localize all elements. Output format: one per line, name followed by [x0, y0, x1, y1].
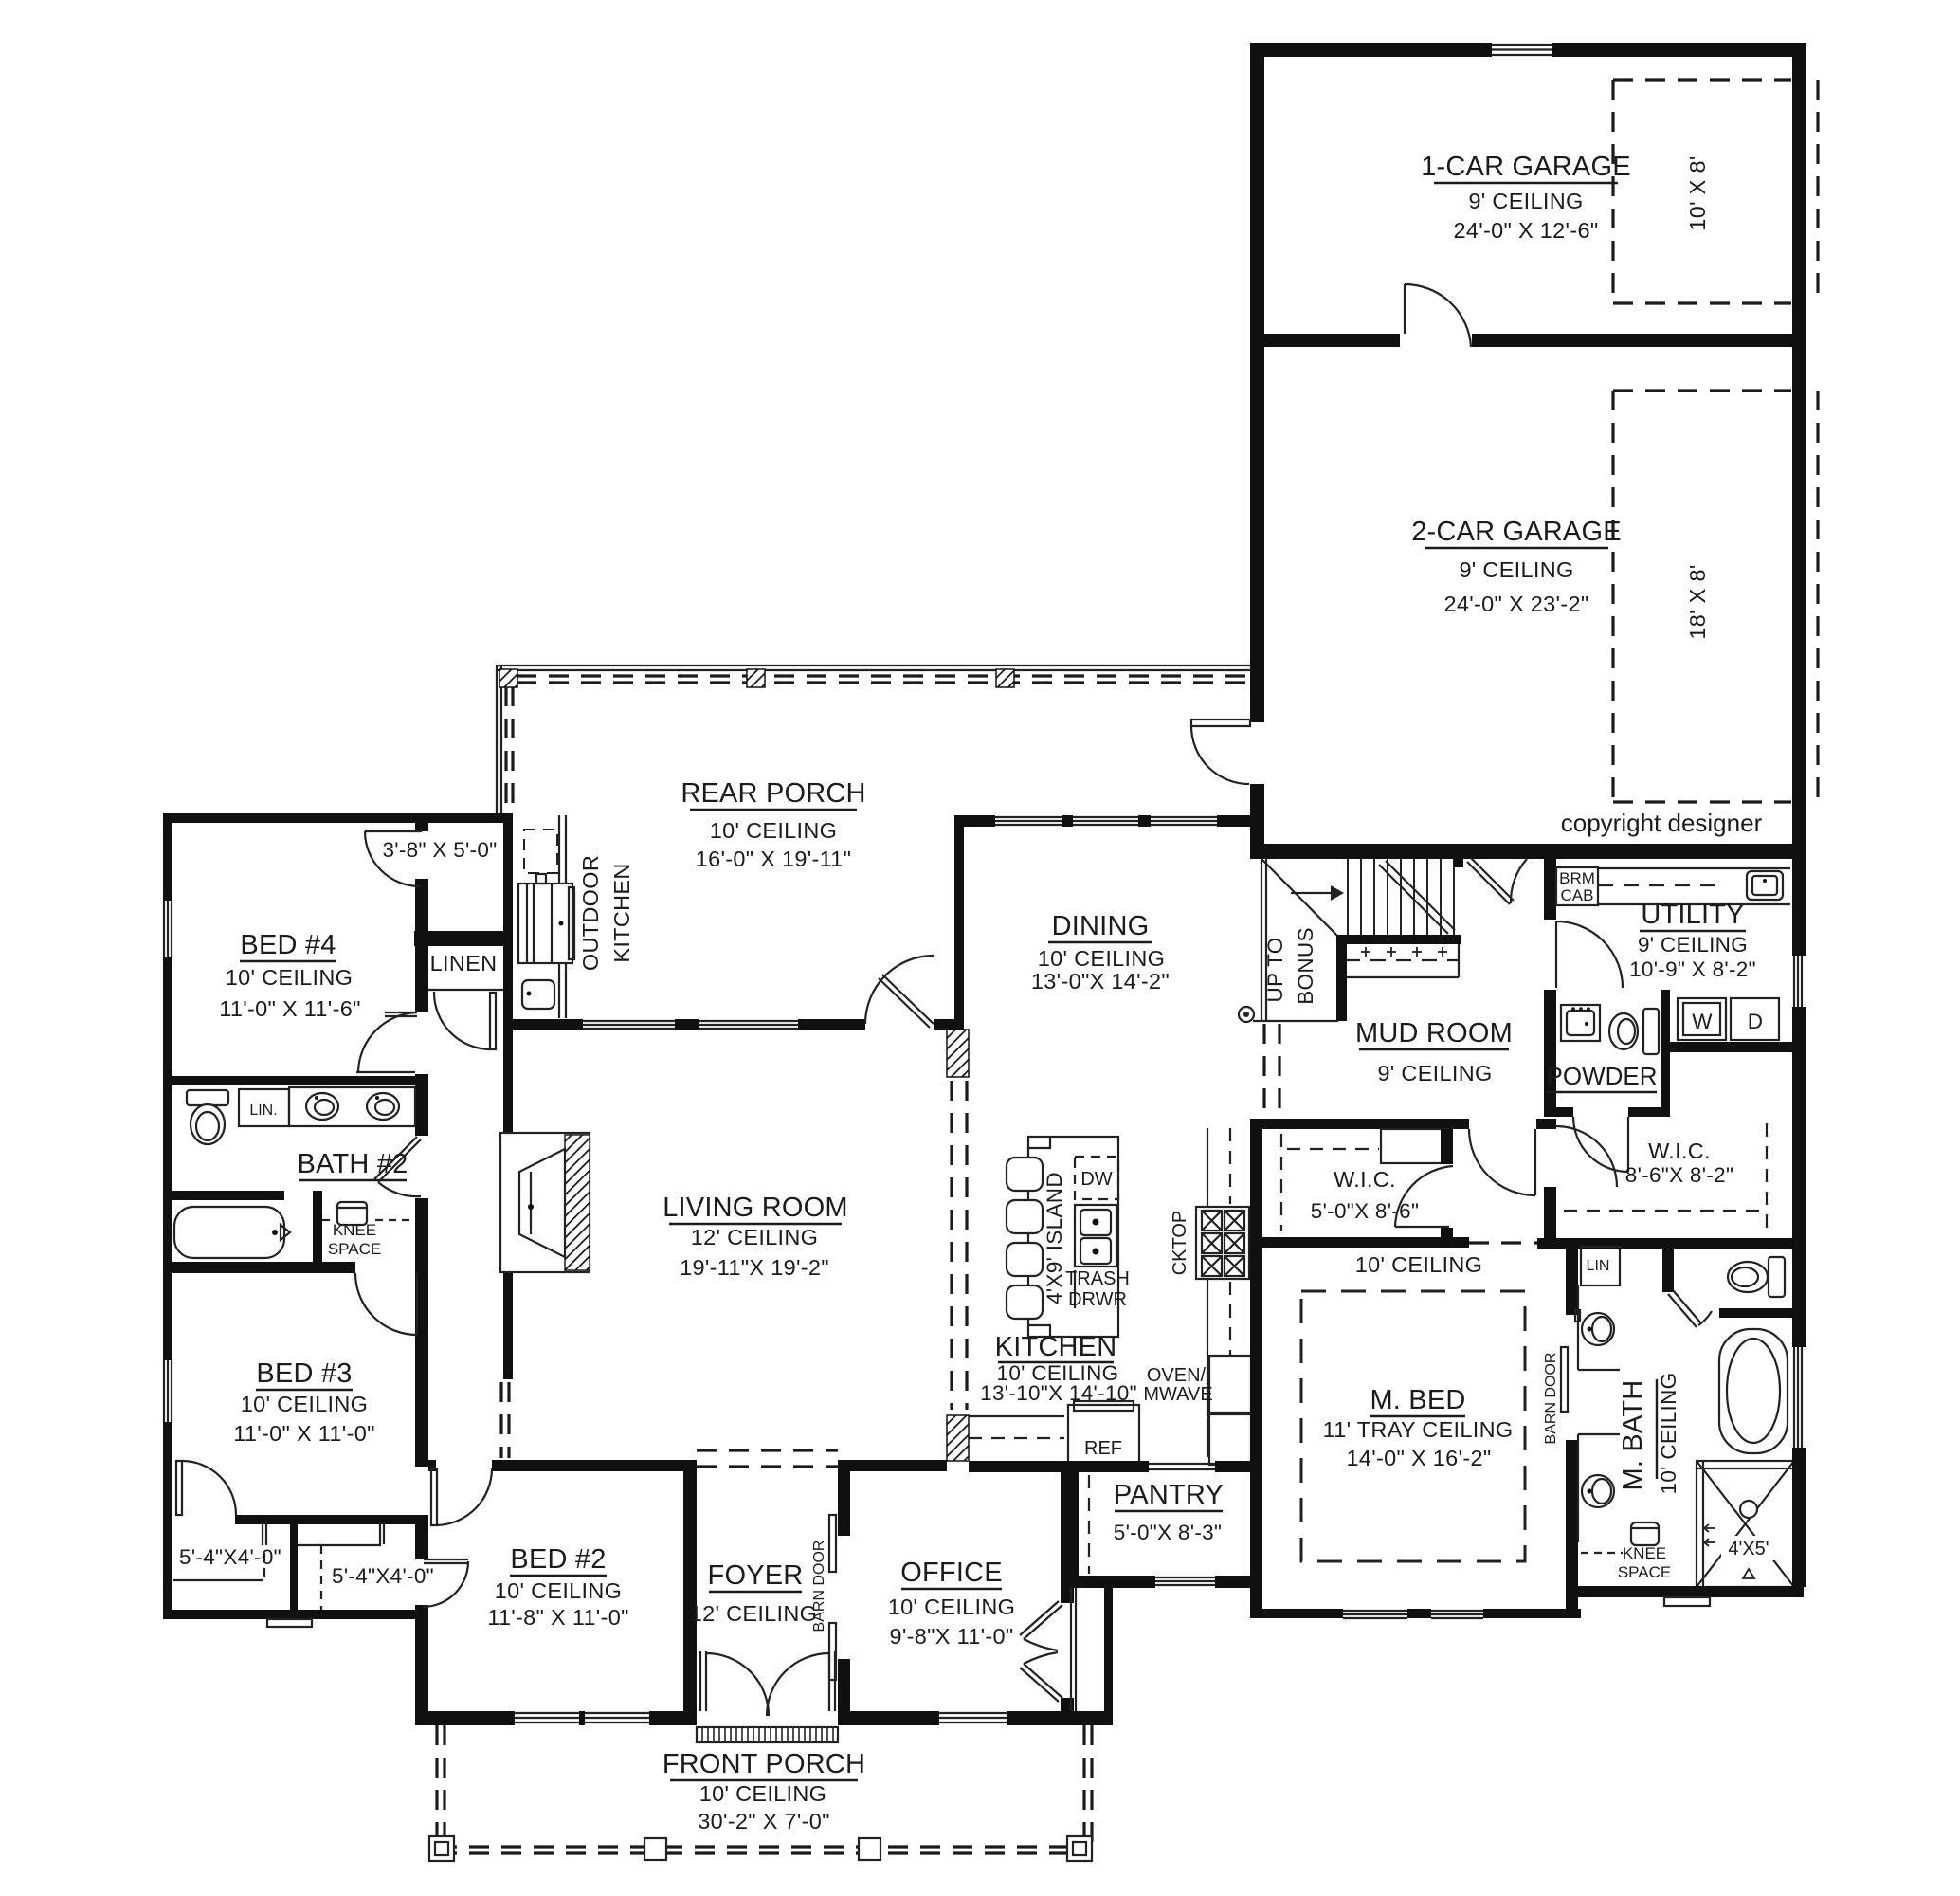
svg-text:10' CEILING: 10' CEILING [710, 818, 837, 843]
svg-text:4'X9' ISLAND: 4'X9' ISLAND [1043, 1172, 1066, 1304]
svg-text:BATH #2: BATH #2 [298, 1149, 408, 1179]
svg-text:9' CEILING: 9' CEILING [1377, 1061, 1492, 1085]
svg-text:MUD ROOM: MUD ROOM [1355, 1018, 1513, 1048]
svg-text:DW: DW [1080, 1169, 1112, 1190]
svg-text:M. BED: M. BED [1370, 1385, 1465, 1415]
svg-text:W.I.C.: W.I.C. [1648, 1139, 1711, 1163]
svg-text:CAB: CAB [1561, 886, 1594, 904]
svg-text:10' CEILING: 10' CEILING [888, 1595, 1015, 1619]
svg-text:10' CEILING: 10' CEILING [1038, 946, 1165, 971]
svg-text:24'-0" X 12'-6": 24'-0" X 12'-6" [1454, 218, 1599, 243]
svg-text:OVEN/: OVEN/ [1147, 1365, 1207, 1386]
svg-text:4'X5': 4'X5' [1728, 1539, 1769, 1559]
svg-text:10' X 8': 10' X 8' [1685, 155, 1710, 230]
svg-text:BED #4: BED #4 [240, 930, 336, 960]
svg-text:REF: REF [1084, 1438, 1122, 1459]
svg-text:10'-9" X 8'-2": 10'-9" X 8'-2" [1629, 957, 1756, 981]
svg-text:10' CEILING: 10' CEILING [226, 965, 353, 990]
svg-text:LIVING ROOM: LIVING ROOM [662, 1193, 848, 1223]
svg-text:KNEE: KNEE [333, 1221, 376, 1239]
svg-text:10' CEILING: 10' CEILING [241, 1392, 368, 1416]
svg-text:5'-4"X4'-0": 5'-4"X4'-0" [179, 1545, 281, 1569]
svg-text:1-CAR GARAGE: 1-CAR GARAGE [1421, 152, 1631, 182]
svg-text:24'-0" X 23'-2": 24'-0" X 23'-2" [1444, 592, 1589, 616]
svg-text:OFFICE: OFFICE [900, 1558, 1003, 1588]
svg-text:OUTDOOR: OUTDOOR [578, 855, 603, 971]
svg-text:9'-8"X 11'-0": 9'-8"X 11'-0" [889, 1624, 1013, 1649]
svg-text:10' CEILING: 10' CEILING [1657, 1373, 1680, 1495]
svg-text:copyright designer: copyright designer [1561, 809, 1763, 837]
svg-text:DRWR: DRWR [1068, 1289, 1127, 1310]
svg-text:BED #2: BED #2 [510, 1544, 606, 1575]
svg-text:KITCHEN: KITCHEN [995, 1332, 1117, 1362]
svg-text:3'-8" X 5'-0": 3'-8" X 5'-0" [382, 838, 497, 862]
svg-text:MWAVE: MWAVE [1143, 1384, 1212, 1405]
svg-text:11'-0" X 11'-0": 11'-0" X 11'-0" [233, 1421, 374, 1446]
svg-text:10' CEILING: 10' CEILING [1355, 1252, 1482, 1277]
svg-text:BARN DOOR: BARN DOOR [1543, 1353, 1559, 1445]
svg-text:11'-8" X 11'-0": 11'-8" X 11'-0" [487, 1605, 628, 1630]
svg-text:10' CEILING: 10' CEILING [699, 1781, 826, 1806]
svg-text:11' TRAY CEILING: 11' TRAY CEILING [1323, 1417, 1514, 1442]
svg-text:16'-0" X 19'-11": 16'-0" X 19'-11" [696, 847, 852, 871]
svg-text:13'-10"X 14'-10": 13'-10"X 14'-10" [980, 1381, 1137, 1405]
svg-text:5'-0"X 8'-3": 5'-0"X 8'-3" [1114, 1521, 1222, 1544]
svg-text:KNEE: KNEE [1623, 1544, 1666, 1562]
svg-text:KITCHEN: KITCHEN [609, 863, 634, 962]
svg-text:9' CEILING: 9' CEILING [1638, 933, 1748, 957]
svg-text:UTILITY: UTILITY [1641, 900, 1744, 930]
svg-text:10' CEILING: 10' CEILING [495, 1578, 622, 1603]
svg-text:W: W [1692, 1010, 1713, 1033]
svg-text:12' CEILING: 12' CEILING [690, 1601, 817, 1626]
svg-text:9' CEILING: 9' CEILING [1459, 557, 1573, 582]
svg-text:BARN DOOR: BARN DOOR [811, 1540, 827, 1632]
svg-text:SPACE: SPACE [1618, 1563, 1671, 1581]
svg-text:14'-0" X 16'-2": 14'-0" X 16'-2" [1347, 1446, 1492, 1470]
svg-text:9' CEILING: 9' CEILING [1468, 189, 1583, 213]
svg-text:BONUS: BONUS [1294, 927, 1317, 1005]
svg-text:LIN.: LIN. [249, 1103, 277, 1119]
svg-text:D: D [1748, 1010, 1764, 1033]
svg-text:M. BATH: M. BATH [1618, 1380, 1648, 1491]
svg-text:30'-2" X 7'-0": 30'-2" X 7'-0" [698, 1809, 830, 1833]
svg-text:BED #3: BED #3 [256, 1358, 352, 1389]
svg-text:POWDER: POWDER [1547, 1062, 1658, 1090]
svg-text:BRM: BRM [1559, 869, 1595, 887]
svg-text:SPACE: SPACE [328, 1240, 381, 1258]
svg-text:PANTRY: PANTRY [1114, 1480, 1224, 1510]
svg-text:FRONT PORCH: FRONT PORCH [662, 1749, 865, 1779]
svg-text:W.I.C.: W.I.C. [1334, 1167, 1396, 1192]
svg-text:2-CAR GARAGE: 2-CAR GARAGE [1411, 517, 1622, 547]
svg-text:11'-0" X 11'-6": 11'-0" X 11'-6" [219, 996, 360, 1021]
svg-text:19'-11"X 19'-2": 19'-11"X 19'-2" [680, 1255, 829, 1280]
svg-text:LIN: LIN [1587, 1258, 1610, 1274]
svg-text:8'-6"X 8'-2": 8'-6"X 8'-2" [1625, 1163, 1733, 1187]
svg-text:CKTOP: CKTOP [1170, 1211, 1190, 1276]
svg-text:5'-4"X4'-0": 5'-4"X4'-0" [332, 1564, 434, 1588]
svg-text:18' X 8': 18' X 8' [1685, 564, 1710, 639]
svg-text:LINEN: LINEN [430, 951, 498, 975]
svg-text:12' CEILING: 12' CEILING [691, 1225, 818, 1249]
svg-text:DINING: DINING [1052, 911, 1150, 941]
svg-text:REAR PORCH: REAR PORCH [681, 778, 865, 809]
svg-text:13'-0"X 14'-2": 13'-0"X 14'-2" [1031, 969, 1170, 994]
svg-text:FOYER: FOYER [708, 1560, 804, 1591]
svg-text:UP TO: UP TO [1263, 937, 1287, 1002]
svg-text:5'-0"X 8'-6": 5'-0"X 8'-6" [1311, 1199, 1419, 1223]
